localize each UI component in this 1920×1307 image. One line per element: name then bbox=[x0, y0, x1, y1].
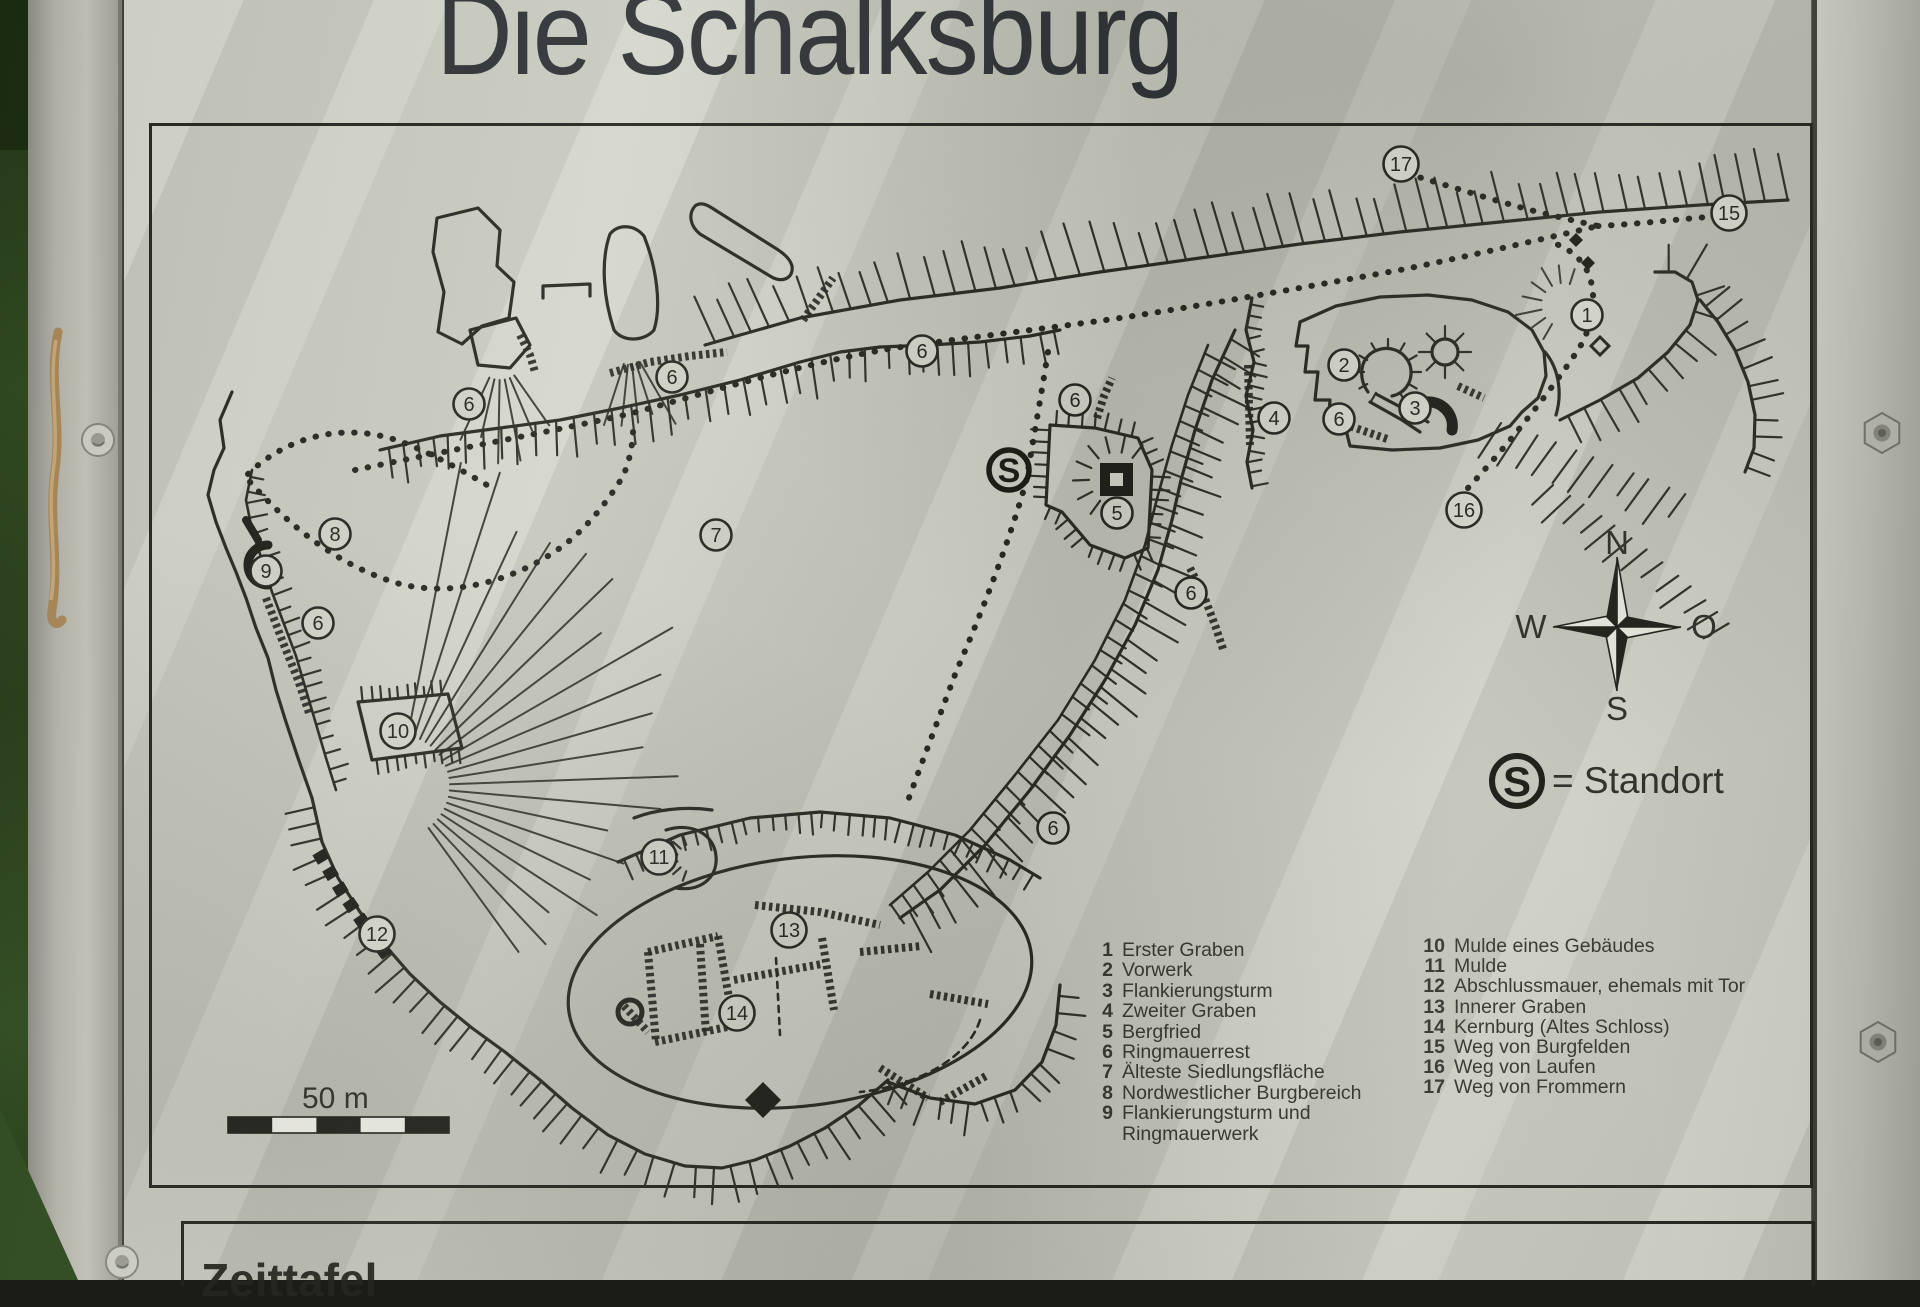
legend-item: 5Bergfried bbox=[1086, 1022, 1362, 1042]
legend-item-number: 17 bbox=[1414, 1077, 1445, 1097]
legend-item-text: Flankierungsturm und bbox=[1122, 1103, 1311, 1123]
legend-item-text: Weg von Burgfelden bbox=[1454, 1037, 1630, 1057]
map-legend-column-right: 10Mulde eines Gebäudes11Mulde12Abschluss… bbox=[1414, 936, 1745, 1098]
legend-item-text: Ringmauerwerk bbox=[1122, 1124, 1259, 1144]
legend-item-number: 4 bbox=[1086, 1001, 1113, 1021]
legend-item-text: Ringmauerrest bbox=[1122, 1042, 1250, 1062]
legend-item-number: 10 bbox=[1414, 936, 1445, 956]
standort-legend-text: = Standort bbox=[1552, 760, 1724, 802]
legend-item-number: 3 bbox=[1086, 981, 1113, 1001]
legend-item-text: Nordwestlicher Burgbereich bbox=[1122, 1083, 1362, 1103]
zeittafel-title: Zeittafel bbox=[201, 1253, 377, 1307]
legend-item-number: 16 bbox=[1414, 1057, 1445, 1077]
legend-item: 13Innerer Graben bbox=[1414, 997, 1745, 1017]
legend-item: 10Mulde eines Gebäudes bbox=[1414, 936, 1745, 956]
legend-item-number: 8 bbox=[1086, 1083, 1113, 1103]
sign-title: Die Schalksburg bbox=[436, 0, 1182, 102]
zeittafel-panel-frame bbox=[181, 1221, 1815, 1286]
legend-item-number: 15 bbox=[1414, 1037, 1445, 1057]
legend-item-number: 9 bbox=[1086, 1103, 1113, 1123]
legend-item-number: 1 bbox=[1086, 940, 1113, 960]
legend-item: 12Abschlussmauer, ehemals mit Tor bbox=[1414, 976, 1745, 996]
legend-item-text: Älteste Siedlungsfläche bbox=[1122, 1062, 1325, 1082]
legend-item: 8Nordwestlicher Burgbereich bbox=[1086, 1083, 1362, 1103]
legend-item-text: Innerer Graben bbox=[1454, 997, 1586, 1017]
legend-item-number: 14 bbox=[1414, 1017, 1445, 1037]
foliage-left bbox=[0, 0, 30, 1280]
legend-item: 16Weg von Laufen bbox=[1414, 1057, 1745, 1077]
legend-item: 3Flankierungsturm bbox=[1086, 981, 1362, 1001]
sign-post-right bbox=[1817, 0, 1920, 1280]
legend-item: 11Mulde bbox=[1414, 956, 1745, 976]
legend-item-text: Flankierungsturm bbox=[1122, 981, 1273, 1001]
legend-item-number: 5 bbox=[1086, 1022, 1113, 1042]
legend-item-number: 7 bbox=[1086, 1062, 1113, 1082]
legend-item: 6Ringmauerrest bbox=[1086, 1042, 1362, 1062]
legend-item: Ringmauerwerk bbox=[1086, 1124, 1362, 1144]
legend-item: 9Flankierungsturm und bbox=[1086, 1103, 1362, 1123]
legend-item: 7Älteste Siedlungsfläche bbox=[1086, 1062, 1362, 1082]
legend-item-text: Weg von Laufen bbox=[1454, 1057, 1596, 1077]
legend-item: 2Vorwerk bbox=[1086, 960, 1362, 980]
legend-item: 14Kernburg (Altes Schloss) bbox=[1414, 1017, 1745, 1037]
legend-item-number: 2 bbox=[1086, 960, 1113, 980]
sign-post-left bbox=[28, 0, 122, 1280]
legend-item: 15Weg von Burgfelden bbox=[1414, 1037, 1745, 1057]
legend-item-number: 13 bbox=[1414, 997, 1445, 1017]
legend-item-text: Bergfried bbox=[1122, 1022, 1201, 1042]
legend-item-text: Weg von Frommern bbox=[1454, 1077, 1626, 1097]
legend-item-text: Vorwerk bbox=[1122, 960, 1192, 980]
scale-bar-label: 50 m bbox=[302, 1082, 369, 1116]
legend-item-text: Mulde eines Gebäudes bbox=[1454, 936, 1655, 956]
legend-item-text: Mulde bbox=[1454, 956, 1507, 976]
legend-item-number: 11 bbox=[1414, 956, 1445, 976]
legend-item: 1Erster Graben bbox=[1086, 940, 1362, 960]
legend-item: 17Weg von Frommern bbox=[1414, 1077, 1745, 1097]
legend-item-number bbox=[1086, 1124, 1113, 1144]
legend-item-text: Kernburg (Altes Schloss) bbox=[1454, 1017, 1670, 1037]
legend-item-number: 6 bbox=[1086, 1042, 1113, 1062]
map-legend-column-left: 1Erster Graben2Vorwerk3Flankierungsturm4… bbox=[1086, 940, 1362, 1144]
legend-item-number: 12 bbox=[1414, 976, 1445, 996]
legend-item-text: Abschlussmauer, ehemals mit Tor bbox=[1454, 976, 1745, 996]
legend-item: 4Zweiter Graben bbox=[1086, 1001, 1362, 1021]
legend-item-text: Erster Graben bbox=[1122, 940, 1244, 960]
legend-item-text: Zweiter Graben bbox=[1122, 1001, 1256, 1021]
